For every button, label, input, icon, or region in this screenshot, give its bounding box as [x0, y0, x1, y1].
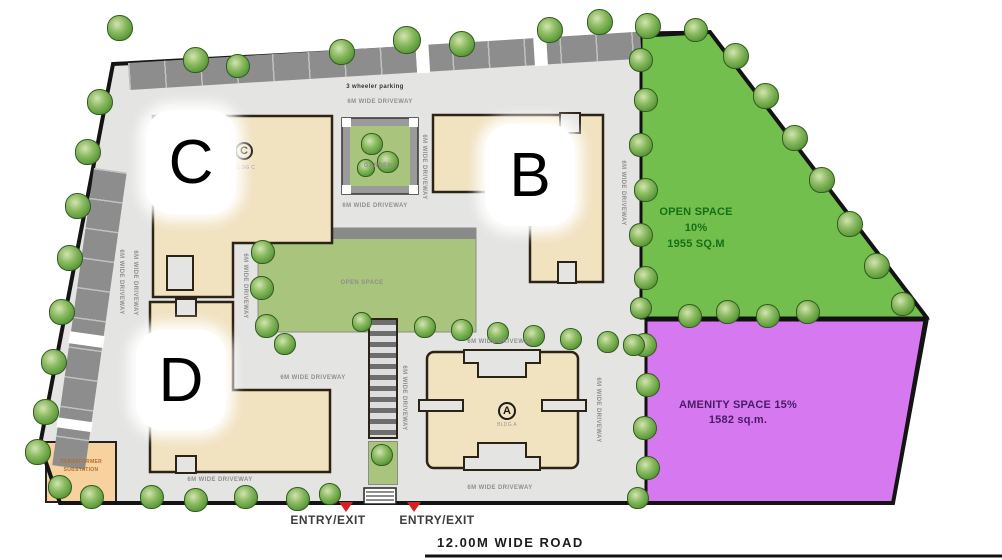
- building-c-subtext: BLDG C: [235, 165, 255, 171]
- tree-icon: [796, 300, 820, 324]
- tree-icon: [80, 485, 104, 509]
- tiny-label: 6M WIDE DRIVEWAY: [342, 203, 407, 209]
- tree-icon: [226, 54, 250, 78]
- tree-icon: [634, 266, 658, 290]
- tiny-label: OPEN SPACE: [341, 280, 384, 286]
- tree-icon: [537, 17, 563, 43]
- open-space-area-text: 1955 SQ.M: [659, 237, 732, 253]
- building-d-label: D: [136, 330, 226, 430]
- tree-icon: [678, 304, 702, 328]
- tree-icon: [684, 18, 708, 42]
- tiny-label: 6M WIDE DRIVEWAY: [421, 134, 427, 199]
- tree-icon: [234, 485, 258, 509]
- tree-icon: [251, 240, 275, 264]
- building-d-notch: [176, 299, 196, 316]
- tree-icon: [623, 334, 645, 356]
- tree-icon: [630, 297, 652, 319]
- entry-gate: [364, 488, 396, 504]
- open-space-percent: 10%: [659, 221, 732, 237]
- tree-icon: [636, 373, 660, 397]
- tree-icon: [274, 333, 296, 355]
- building-c-notch: [167, 256, 193, 290]
- entry-arrow-icon: [339, 502, 353, 512]
- tree-icon: [756, 304, 780, 328]
- tree-icon: [587, 9, 613, 35]
- building-a-right-slot: [542, 400, 586, 411]
- three-wheeler-parking-label: 3 wheeler parking: [346, 84, 404, 90]
- transformer-label-line1: TRANSFORMER: [60, 459, 102, 465]
- tiny-label: 6M WIDE DRIVEWAY: [620, 160, 626, 225]
- tree-icon: [48, 475, 72, 499]
- tiny-label: 6M WIDE DRIVEWAY: [118, 249, 124, 314]
- amenity-area-text: 1582 sq.m.: [679, 413, 797, 428]
- tree-icon: [716, 300, 740, 324]
- building-c-label: C: [146, 110, 236, 214]
- open-space-title: OPEN SPACE: [659, 205, 732, 221]
- garden-corner: [342, 185, 351, 194]
- tree-icon: [809, 167, 835, 193]
- amenity-title: AMENITY SPACE 15%: [679, 398, 797, 413]
- tiny-label: GARDEN: [364, 163, 392, 169]
- tree-icon: [75, 139, 101, 165]
- tree-icon: [597, 331, 619, 353]
- tree-icon: [255, 314, 279, 338]
- tree-icon: [393, 26, 421, 54]
- tree-icon: [864, 253, 890, 279]
- garden-corner: [409, 118, 418, 127]
- tree-icon: [627, 487, 649, 509]
- tiny-label: 6M WIDE DRIVEWAY: [467, 485, 532, 491]
- tree-icon: [753, 83, 779, 109]
- tree-icon: [361, 133, 383, 155]
- tree-icon: [250, 276, 274, 300]
- parking-gap: [68, 331, 104, 348]
- road-label: 12.00M WIDE ROAD: [437, 535, 584, 550]
- tree-icon: [633, 416, 657, 440]
- site-plan: C B D A BLDG A C BLDG C OPEN SPACE 10% 1…: [0, 0, 1002, 560]
- garden-corner: [342, 118, 351, 127]
- tiny-label: 6M WIDE DRIVEWAY: [242, 253, 248, 318]
- tree-icon: [65, 193, 91, 219]
- tiny-label: 6M WIDE DRIVEWAY: [347, 99, 412, 105]
- tree-icon: [33, 399, 59, 425]
- parking-gap: [57, 417, 93, 432]
- tree-icon: [629, 48, 653, 72]
- tree-icon: [286, 487, 310, 511]
- tiny-label: 6M WIDE DRIVEWAY: [401, 365, 407, 430]
- building-a-subtext: BLDG A: [497, 422, 517, 428]
- tree-icon: [140, 485, 164, 509]
- transformer-label-line2: SUBSTATION: [64, 467, 99, 473]
- tree-icon: [41, 349, 67, 375]
- entry-exit-label-1: ENTRY/EXIT: [290, 513, 365, 527]
- tree-icon: [319, 483, 341, 505]
- center-parking-strip: [368, 318, 398, 439]
- tiny-label: 6M WIDE DRIVEWAY: [187, 477, 252, 483]
- building-a-left-slot: [419, 400, 463, 411]
- tree-icon: [414, 316, 436, 338]
- tree-icon: [560, 328, 582, 350]
- tree-icon: [782, 125, 808, 151]
- building-a-circle-label: A: [498, 402, 516, 420]
- tree-icon: [49, 299, 75, 325]
- entry-exit-label-2: ENTRY/EXIT: [399, 513, 474, 527]
- tree-icon: [636, 456, 660, 480]
- tree-icon: [57, 245, 83, 271]
- building-d-letter: D: [159, 345, 204, 416]
- tree-icon: [635, 13, 661, 39]
- tree-icon: [377, 151, 399, 173]
- garden-corner: [409, 185, 418, 194]
- tree-icon: [184, 488, 208, 512]
- building-c-circle-label: C: [235, 142, 253, 160]
- tiny-label: 6M WIDE DRIVEWAY: [132, 250, 138, 315]
- tree-icon: [329, 39, 355, 65]
- tree-icon: [629, 133, 653, 157]
- amenity-space-label: AMENITY SPACE 15% 1582 sq.m.: [679, 398, 797, 429]
- tree-icon: [352, 312, 372, 332]
- tiny-label: 6M WIDE DRIVEWAY: [280, 375, 345, 381]
- building-b-label: B: [485, 124, 575, 226]
- tree-icon: [183, 47, 209, 73]
- tree-icon: [107, 15, 133, 41]
- tree-icon: [87, 89, 113, 115]
- building-b-notch: [558, 262, 576, 283]
- tree-icon: [449, 31, 475, 57]
- open-space-label: OPEN SPACE 10% 1955 SQ.M: [659, 205, 732, 253]
- tree-icon: [634, 88, 658, 112]
- tree-icon: [837, 211, 863, 237]
- tree-icon: [723, 43, 749, 69]
- building-b-letter: B: [509, 140, 550, 211]
- tree-icon: [451, 319, 473, 341]
- tiny-label: 6M WIDE DRIVEWAY: [467, 339, 532, 345]
- building-d-notch: [176, 456, 196, 473]
- tiny-label: 6M WIDE DRIVEWAY: [595, 377, 601, 442]
- tree-icon: [891, 292, 915, 316]
- entry-arrow-icon: [407, 502, 421, 512]
- tree-icon: [634, 178, 658, 202]
- tree-icon: [25, 439, 51, 465]
- tree-icon: [371, 444, 393, 466]
- tree-icon: [629, 223, 653, 247]
- building-c-letter: C: [169, 127, 214, 198]
